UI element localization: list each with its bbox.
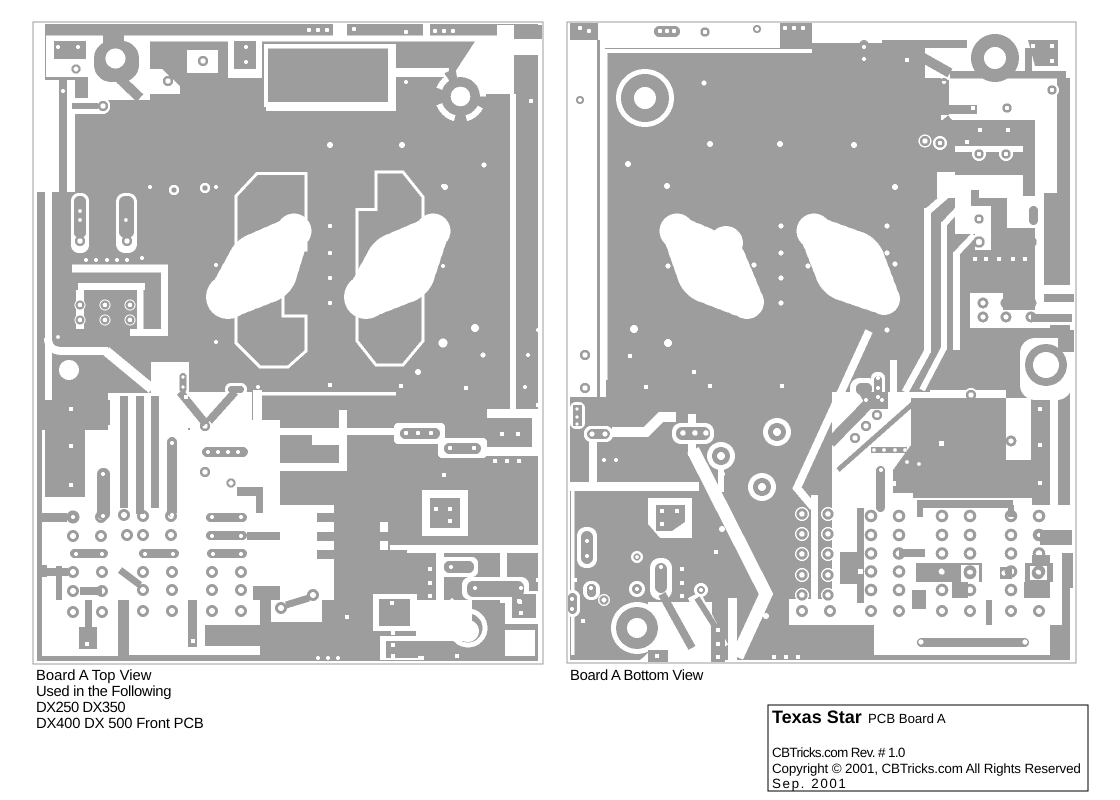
svg-text:PCB Board A: PCB Board A (868, 711, 946, 726)
svg-text:DX250 DX350: DX250 DX350 (36, 700, 125, 716)
svg-text:Copyright © 2001, CBTricks.com: Copyright © 2001, CBTricks.com All Right… (772, 761, 1081, 776)
svg-text:Sep. 2001: Sep. 2001 (772, 776, 847, 791)
svg-text:Board A Bottom View: Board A Bottom View (570, 668, 704, 684)
svg-text:Texas Star: Texas Star (772, 707, 862, 727)
svg-text:Used in the Following: Used in the Following (36, 684, 171, 700)
svg-text:DX400 DX 500 Front PCB: DX400 DX 500 Front PCB (36, 716, 204, 732)
svg-text:CBTricks.com Rev. # 1.0: CBTricks.com Rev. # 1.0 (772, 745, 905, 760)
svg-text:Board A Top View: Board A Top View (36, 668, 152, 684)
